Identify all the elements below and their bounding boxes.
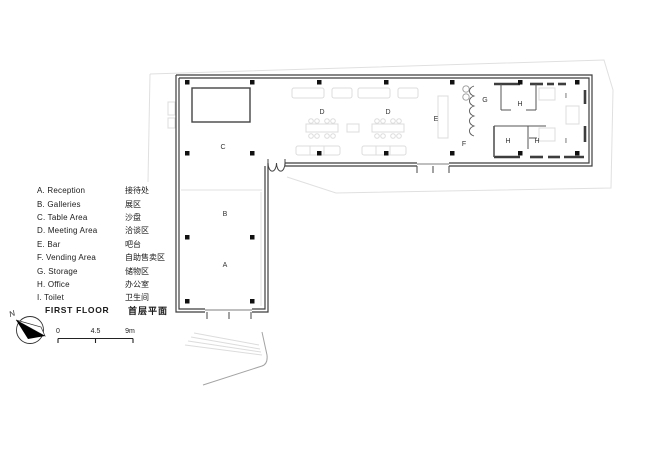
room-label-storage: G: [482, 97, 487, 104]
room-label-meeting-2: D: [385, 109, 390, 116]
legend-item-en: G. Storage: [37, 267, 125, 276]
scale-label-start: 0: [56, 328, 60, 335]
room-label-bar: E: [434, 116, 439, 123]
overhang-lines: [181, 190, 262, 306]
room-label-reception: A: [223, 262, 228, 269]
room-label-galleries: B: [223, 211, 228, 218]
double-door: [268, 159, 285, 171]
legend-item-en: B. Galleries: [37, 200, 125, 209]
side-entrance: [417, 164, 449, 173]
room-label-vending: F: [462, 141, 466, 148]
room-label-office-1: H: [517, 101, 522, 108]
legend-item: C. Table Area 沙盘: [37, 211, 165, 224]
north-label: N: [8, 309, 17, 320]
scale-bar-line: [58, 339, 133, 344]
legend-item: D. Meeting Area 洽谈区: [37, 224, 165, 237]
legend-item-en: E. Bar: [37, 240, 125, 249]
legend-item-zh: 办公室: [125, 279, 149, 290]
office-partitions: [494, 84, 546, 157]
legend-item-zh: 吧台: [125, 239, 141, 250]
legend-item-en: D. Meeting Area: [37, 226, 125, 235]
legend-item-zh: 沙盘: [125, 212, 141, 223]
legend-item: B. Galleries 展区: [37, 197, 165, 210]
floor-plan-sheet: C D D E F G H H H I I B A A. Reception 接…: [0, 0, 650, 459]
entrance-path: [185, 332, 267, 385]
legend-item: H. Office 办公室: [37, 278, 165, 291]
legend-item: G. Storage 储物区: [37, 264, 165, 277]
legend-item: E. Bar 吧台: [37, 238, 165, 251]
legend-item: A. Reception 接待处: [37, 184, 165, 197]
room-label-toilet-1: I: [565, 93, 567, 100]
legend-item: F. Vending Area 自助售卖区: [37, 251, 165, 264]
room-label-meeting-1: D: [319, 109, 324, 116]
drawing-title-zh: 首层平面: [128, 304, 168, 317]
legend-item-zh: 展区: [125, 199, 141, 210]
folding-partition: [470, 86, 475, 136]
legend-item-en: H. Office: [37, 280, 125, 289]
legend-item-zh: 接待处: [125, 185, 149, 196]
legend-item-zh: 储物区: [125, 266, 149, 277]
room-label-toilet-2: I: [565, 138, 567, 145]
legend: A. Reception 接待处 B. Galleries 展区 C. Tabl…: [37, 184, 165, 305]
room-labels: C D D E F G H H H I I B A: [220, 93, 567, 269]
room-label-office-3: H: [534, 138, 539, 145]
scale-label-mid: 4.5: [91, 328, 101, 335]
partition-rings: [463, 86, 469, 100]
legend-item-zh: 洽谈区: [125, 225, 149, 236]
legend-item-zh: 自助售卖区: [125, 252, 165, 263]
room-label-table-area: C: [220, 144, 225, 151]
legend-item-zh: 卫生间: [125, 292, 149, 303]
legend-item-en: A. Reception: [37, 186, 125, 195]
legend-item-en: F. Vending Area: [37, 253, 125, 262]
legend-item-en: C. Table Area: [37, 213, 125, 222]
main-entrance: [205, 310, 252, 319]
legend-item-en: I. Toilet: [37, 293, 125, 302]
scale-bar: 0 4.5 9m: [50, 324, 142, 346]
room-label-office-2: H: [505, 138, 510, 145]
scale-label-end: 9m: [125, 328, 135, 335]
sand-table: [192, 88, 250, 122]
